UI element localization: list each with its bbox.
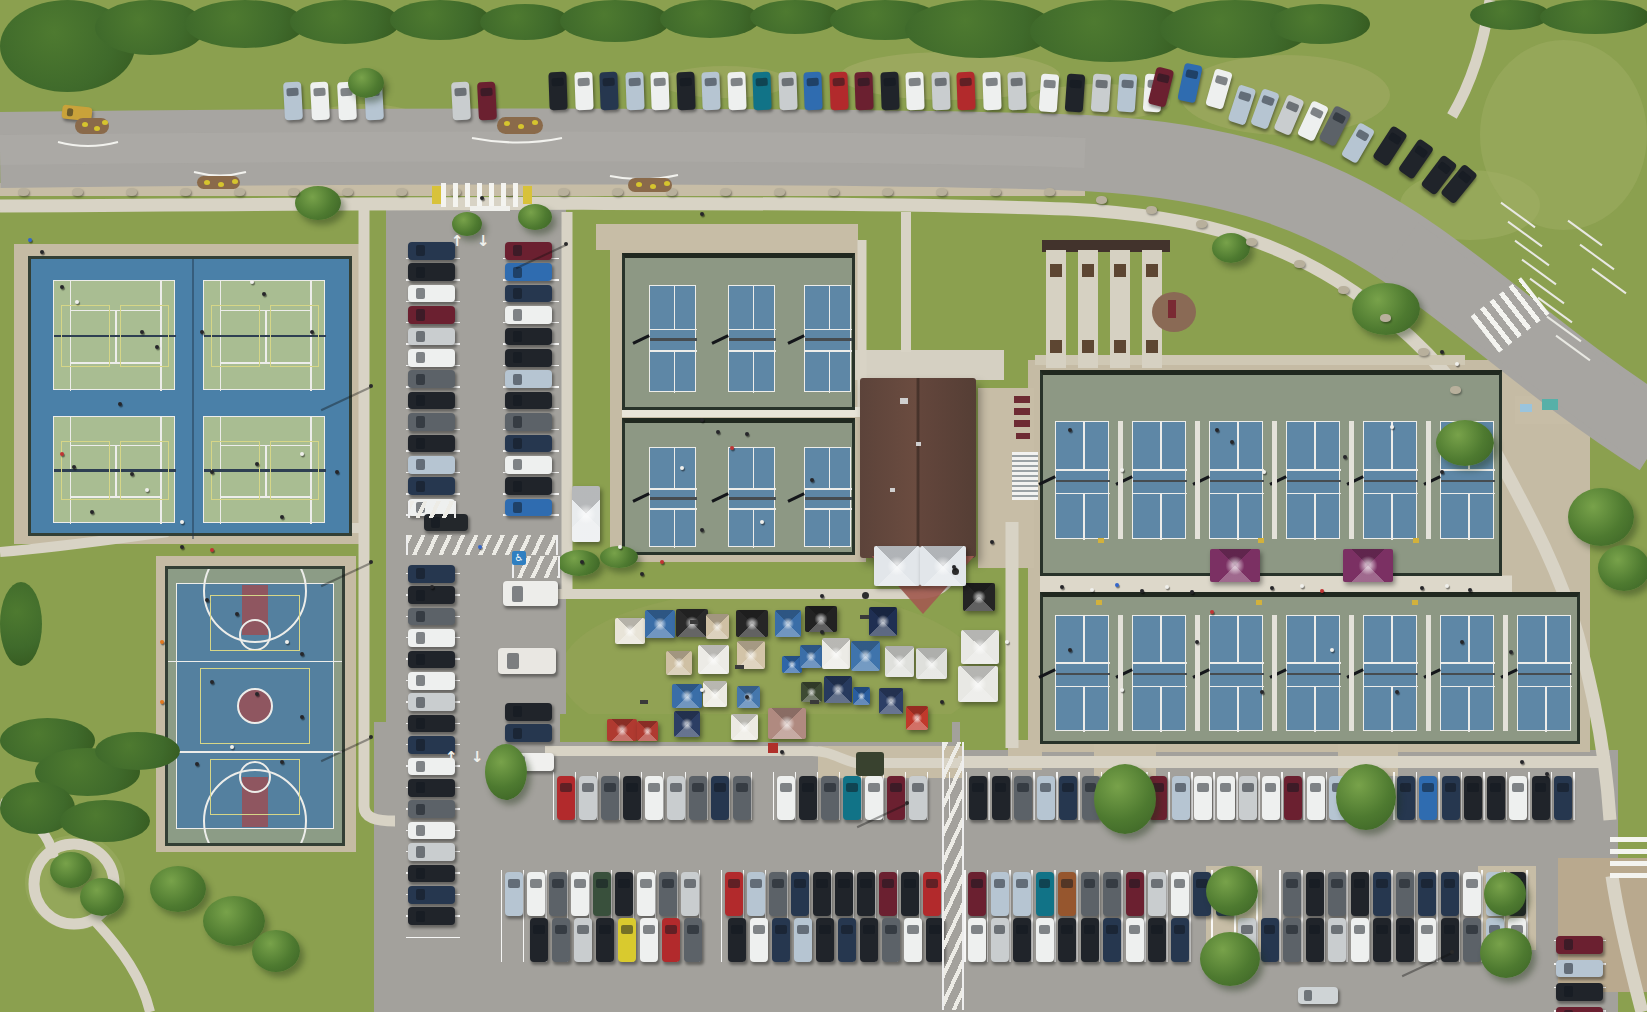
windshield <box>1356 129 1370 141</box>
windshield <box>508 879 520 888</box>
hatched-area <box>408 501 456 518</box>
car <box>880 72 899 111</box>
windshield <box>1512 783 1524 792</box>
court-line <box>1237 616 1239 662</box>
court-line <box>1272 421 1277 539</box>
windshield <box>665 925 677 934</box>
tree-canopy <box>480 4 570 40</box>
car <box>791 872 809 916</box>
boulder <box>288 188 299 196</box>
car <box>615 872 633 916</box>
windshield <box>582 783 594 792</box>
tree <box>150 866 206 912</box>
windshield <box>416 288 425 299</box>
windshield <box>728 879 740 888</box>
windshield <box>416 590 425 601</box>
boulder <box>828 188 839 196</box>
pickleball-overlay-lines <box>211 441 260 501</box>
person <box>760 520 764 524</box>
car <box>1441 872 1459 916</box>
person <box>580 560 584 564</box>
windshield <box>772 879 784 888</box>
windshield <box>858 78 870 86</box>
windshield <box>1331 925 1343 934</box>
person <box>230 745 234 749</box>
court-line <box>829 508 831 548</box>
car <box>599 72 618 111</box>
court-line <box>1056 469 1110 471</box>
tree <box>1212 233 1250 263</box>
windshield <box>1309 925 1321 934</box>
court-line <box>650 338 697 341</box>
court-line <box>1146 264 1158 277</box>
car <box>618 918 636 962</box>
court-line <box>1056 480 1110 483</box>
pickleball-court <box>804 285 851 392</box>
windshield <box>552 78 564 86</box>
table <box>640 700 648 704</box>
car <box>923 872 941 916</box>
court-line <box>1364 662 1418 664</box>
windshield <box>1458 170 1472 183</box>
pickleball-overlay-lines <box>270 305 319 367</box>
car <box>579 776 597 820</box>
court-line <box>1056 662 1110 664</box>
boulder <box>234 188 245 196</box>
car <box>1509 776 1527 820</box>
canopy-tent <box>906 706 928 730</box>
windshield <box>513 352 522 363</box>
court-line <box>674 508 676 548</box>
windshield <box>596 879 608 888</box>
car <box>992 776 1010 820</box>
windshield <box>314 88 326 96</box>
person <box>700 212 704 216</box>
trash-can <box>862 592 869 599</box>
court-line <box>1237 493 1239 540</box>
windshield <box>416 632 425 643</box>
windshield <box>416 868 425 879</box>
car <box>1194 776 1212 820</box>
court-line <box>729 338 776 341</box>
windshield <box>603 78 615 86</box>
court-line <box>650 488 697 490</box>
person <box>1060 585 1064 589</box>
windshield <box>832 78 844 86</box>
windshield <box>736 783 748 792</box>
boulder <box>126 188 137 196</box>
pickleball-overlay-lines <box>270 441 319 501</box>
windshield <box>802 783 814 792</box>
windshield <box>705 78 717 86</box>
car <box>1418 918 1436 962</box>
court-line <box>674 350 676 393</box>
person <box>820 594 824 598</box>
car <box>408 886 455 904</box>
windshield <box>66 107 73 117</box>
windshield <box>846 783 858 792</box>
person <box>430 585 434 589</box>
car <box>1373 918 1391 962</box>
car <box>1036 918 1054 962</box>
car <box>1148 918 1166 962</box>
windshield <box>1444 879 1456 888</box>
car <box>1172 776 1190 820</box>
windshield <box>994 879 1006 888</box>
windshield <box>794 879 806 888</box>
tree-canopy <box>1270 4 1370 44</box>
canopy-tent <box>874 546 920 586</box>
car <box>552 918 570 962</box>
court-line <box>1364 673 1418 676</box>
windshield <box>753 925 765 934</box>
windshield <box>929 925 941 934</box>
windshield <box>824 783 836 792</box>
windshield <box>1444 925 1456 934</box>
windshield <box>416 825 425 836</box>
car <box>557 776 575 820</box>
court-line <box>1038 668 1055 678</box>
car <box>725 872 743 916</box>
windshield <box>416 611 425 622</box>
pavement-arrow: ↑ <box>445 748 458 766</box>
court-line <box>1287 673 1341 676</box>
windshield <box>971 879 983 888</box>
bench <box>1168 300 1176 318</box>
court-line <box>753 286 755 329</box>
car <box>1419 776 1437 820</box>
canopy-tent <box>674 711 700 737</box>
canopy-tent <box>920 546 966 586</box>
court-line <box>1287 662 1341 664</box>
car <box>505 242 552 260</box>
windshield <box>1238 91 1251 102</box>
court-line <box>1391 616 1393 662</box>
windshield <box>1016 879 1028 888</box>
car <box>1117 73 1138 112</box>
canopy-tent <box>666 651 692 675</box>
canopy-tent <box>698 645 729 674</box>
tree <box>295 186 341 220</box>
windshield <box>513 438 522 449</box>
court-line <box>787 334 804 344</box>
car <box>1036 872 1054 916</box>
person <box>255 462 259 466</box>
car <box>408 779 455 797</box>
car <box>865 776 883 820</box>
pavement-arrow: ↑ <box>451 232 464 250</box>
pickleball-court <box>1440 615 1494 731</box>
car <box>505 370 552 388</box>
person <box>680 466 684 470</box>
car <box>408 629 455 647</box>
court-line <box>805 329 852 331</box>
person <box>1455 362 1459 366</box>
car <box>821 776 839 820</box>
windshield <box>640 879 652 888</box>
car <box>505 328 552 346</box>
utility-box <box>1520 404 1532 412</box>
windshield <box>513 481 522 492</box>
canopy-tent <box>958 666 998 702</box>
car <box>408 285 455 303</box>
car <box>505 306 552 324</box>
car <box>1013 872 1031 916</box>
windshield <box>513 245 522 256</box>
canopy-tent <box>615 618 645 644</box>
court-line <box>1426 421 1431 539</box>
windshield <box>533 925 545 934</box>
boulder <box>1418 348 1429 356</box>
car <box>1418 872 1436 916</box>
car <box>571 872 589 916</box>
car <box>1283 872 1301 916</box>
windshield <box>1096 80 1108 88</box>
windshield <box>1304 990 1312 1001</box>
pickleball-overlay-lines <box>120 305 169 367</box>
tree <box>485 744 527 800</box>
person <box>280 515 284 519</box>
windshield <box>513 416 522 427</box>
court-line <box>1038 475 1055 485</box>
windshield <box>1157 73 1170 83</box>
court-line <box>650 497 697 500</box>
windshield <box>841 925 853 934</box>
windshield <box>1242 783 1254 792</box>
car <box>854 72 873 111</box>
pickleball-court <box>649 285 696 392</box>
car <box>283 82 303 121</box>
windshield <box>416 331 425 342</box>
cart <box>768 743 778 753</box>
car <box>1464 776 1482 820</box>
car <box>1126 872 1144 916</box>
windshield <box>1062 783 1074 792</box>
court-line <box>1287 469 1341 471</box>
tree-canopy <box>0 582 42 666</box>
car <box>1091 73 1112 112</box>
court-line <box>1210 673 1264 676</box>
boulder <box>936 188 947 196</box>
pickleball-court <box>1286 421 1340 539</box>
pickleball-bank <box>1040 370 1502 576</box>
windshield <box>648 783 660 792</box>
court-line <box>753 508 755 548</box>
canopy-tent <box>706 614 729 639</box>
windshield <box>714 783 726 792</box>
car <box>879 872 897 916</box>
person <box>280 760 284 764</box>
boulder <box>1450 386 1461 394</box>
person <box>1120 468 1124 472</box>
windshield <box>1399 925 1411 934</box>
court-line <box>805 338 852 341</box>
court-line <box>1441 480 1495 483</box>
court-line <box>1083 422 1085 469</box>
person <box>810 478 814 482</box>
car <box>969 776 987 820</box>
person <box>478 545 482 549</box>
person <box>700 418 704 422</box>
person <box>990 540 994 544</box>
court-line <box>1545 686 1547 732</box>
car <box>1397 776 1415 820</box>
car <box>882 918 900 962</box>
tree <box>80 878 124 916</box>
tree-canopy <box>1470 0 1550 30</box>
car <box>1284 776 1302 820</box>
horseshoe-pits <box>1042 240 1170 372</box>
tree <box>518 204 552 230</box>
windshield <box>1438 161 1452 174</box>
car <box>640 918 658 962</box>
car <box>1148 872 1166 916</box>
windshield <box>416 245 425 256</box>
boulder <box>18 188 29 196</box>
car <box>956 72 975 111</box>
car <box>408 242 455 260</box>
windshield <box>780 783 792 792</box>
court-number-mark <box>1098 538 1104 543</box>
car <box>505 872 523 916</box>
court-line <box>916 442 921 446</box>
person <box>1468 588 1472 592</box>
court-line <box>1426 615 1431 731</box>
car <box>623 776 641 820</box>
court-line <box>1083 686 1085 732</box>
pickleball-overlay-lines <box>61 305 110 367</box>
person <box>210 470 214 474</box>
person <box>180 545 184 549</box>
aerial-photo-sports-complex: Aerial drone photo of an outdoor sports … <box>0 0 1647 1012</box>
windshield <box>416 374 425 385</box>
person <box>1090 588 1094 592</box>
court-line <box>1146 340 1158 353</box>
windshield <box>1421 925 1433 934</box>
person <box>160 700 164 704</box>
tree <box>1094 764 1156 834</box>
windshield <box>1129 879 1141 888</box>
windshield <box>416 309 425 320</box>
person <box>1195 640 1199 644</box>
windshield <box>1467 783 1479 792</box>
canopy-tent <box>824 676 852 703</box>
windshield <box>1286 879 1298 888</box>
windshield <box>985 78 997 86</box>
canopy-tent <box>782 656 802 673</box>
tree <box>348 68 384 98</box>
person <box>660 560 664 564</box>
car <box>816 918 834 962</box>
car <box>991 872 1009 916</box>
windshield <box>1016 925 1028 934</box>
car <box>905 72 924 111</box>
windshield <box>1310 107 1324 119</box>
windshield <box>1061 925 1073 934</box>
car <box>968 872 986 916</box>
windshield <box>1261 95 1274 106</box>
person <box>1230 440 1234 444</box>
car <box>843 776 861 820</box>
car <box>596 918 614 962</box>
table <box>735 665 744 669</box>
windshield <box>513 374 522 385</box>
windshield <box>513 309 522 320</box>
windshield <box>819 925 831 934</box>
windshield <box>1388 132 1402 145</box>
car <box>408 843 455 861</box>
person <box>1509 650 1513 654</box>
utility-box <box>1542 399 1558 410</box>
court-line <box>1050 340 1062 353</box>
car <box>408 715 455 733</box>
car <box>408 565 455 583</box>
person <box>90 510 94 514</box>
boulder <box>396 188 407 196</box>
person <box>640 572 644 576</box>
windshield <box>662 879 674 888</box>
pickleball-court <box>1517 615 1571 731</box>
car <box>408 392 455 410</box>
windshield <box>775 925 787 934</box>
court-line <box>632 334 649 344</box>
court-line <box>1195 615 1200 731</box>
canopy-tent <box>607 719 637 741</box>
court-line <box>1237 422 1239 469</box>
tennis-court <box>53 280 175 390</box>
canopy-tent <box>853 687 870 705</box>
windshield <box>1331 879 1343 888</box>
court-line <box>200 668 310 744</box>
car <box>1058 872 1076 916</box>
court-number-mark <box>1412 600 1418 605</box>
windshield <box>416 654 425 665</box>
court-line <box>1133 662 1187 664</box>
person <box>1068 428 1072 432</box>
windshield <box>513 459 522 470</box>
tree <box>1568 488 1634 546</box>
flowers <box>204 180 210 185</box>
car <box>1037 776 1055 820</box>
windshield <box>756 78 768 86</box>
windshield <box>1286 925 1298 934</box>
car <box>1013 918 1031 962</box>
light-pole <box>905 801 909 805</box>
canopy-tent <box>916 648 947 679</box>
person <box>140 330 144 334</box>
path <box>364 207 395 821</box>
person <box>1445 584 1449 588</box>
windshield <box>1151 879 1163 888</box>
person <box>300 652 304 656</box>
windshield <box>530 879 542 888</box>
boulder <box>1146 206 1157 214</box>
person <box>75 300 79 304</box>
car <box>1396 918 1414 962</box>
tree <box>1484 872 1526 916</box>
court-number-mark <box>1256 600 1262 605</box>
court-line <box>890 488 895 492</box>
court-line <box>632 492 649 502</box>
canopy-tent <box>963 583 995 611</box>
flowers <box>650 184 656 189</box>
car <box>728 918 746 962</box>
court-line <box>1349 615 1354 731</box>
car <box>829 72 848 111</box>
light-pole <box>369 560 373 564</box>
tree-canopy <box>290 0 400 44</box>
person <box>716 430 720 434</box>
